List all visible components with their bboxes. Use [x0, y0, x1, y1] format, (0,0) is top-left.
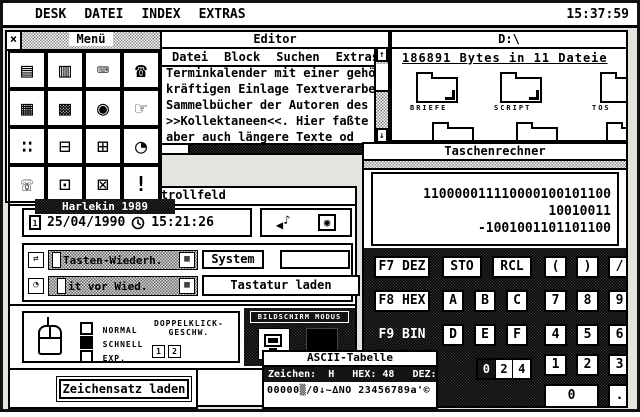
- folder-label-script: SCRIPT: [494, 104, 531, 112]
- decimal-point-button[interactable]: .: [608, 384, 628, 408]
- speed-box-1[interactable]: 1: [152, 345, 165, 358]
- notes-icon[interactable]: ▤: [8, 51, 46, 89]
- card-index-icon[interactable]: ▥: [46, 51, 84, 89]
- digit-6-button[interactable]: 6: [608, 324, 628, 346]
- terminal-icon[interactable]: ⊠: [84, 165, 122, 203]
- calculator-icon[interactable]: ▩: [46, 89, 84, 127]
- menu-datei[interactable]: DATEI: [84, 7, 123, 22]
- paren-close-button[interactable]: ): [576, 256, 599, 278]
- folder-icon[interactable]: [500, 77, 542, 103]
- editor-line: Terminkalender mit einer gehöri: [162, 65, 374, 81]
- clock-icon: [131, 216, 145, 230]
- dice-icon[interactable]: ∷: [8, 127, 46, 165]
- editor-line: kräftigen Einlage Textverarbeit: [162, 81, 374, 97]
- folder-label-briefe: BRIEFE: [410, 104, 447, 112]
- sound-panel: ◀♪ ◉: [260, 208, 352, 237]
- editor-menu-extras[interactable]: Extras: [336, 50, 379, 64]
- menubar: DESK DATEI INDEX EXTRAS 15:37:59: [3, 3, 637, 28]
- floppy-icon[interactable]: ⊞: [84, 127, 122, 165]
- calculator-display: 110000011110000100101100 10010011 -10010…: [371, 172, 619, 246]
- close-icon[interactable]: ×: [7, 32, 22, 49]
- file-titlebar[interactable]: D:\: [392, 32, 626, 49]
- ascii-title: ASCII-Tabelle: [307, 352, 393, 364]
- pointer-hand-icon[interactable]: ☞: [122, 89, 160, 127]
- editor-window: Editor Datei Block Suchen Extras Termink…: [160, 30, 390, 155]
- typewriter-icon[interactable]: ⌨: [84, 51, 122, 89]
- time-value[interactable]: 15:21:26: [151, 215, 214, 230]
- folder-icon[interactable]: [416, 77, 458, 103]
- calculator-title: Taschenrechner: [444, 144, 545, 158]
- editor-line: >>Kollektaneen<<. Hier faßte ma: [162, 113, 374, 129]
- hex-f-button[interactable]: F: [506, 324, 528, 346]
- menu-extras[interactable]: EXTRAS: [199, 7, 246, 22]
- key-repeat-end-icon: ▦: [179, 252, 195, 268]
- bell-icon[interactable]: ◉: [318, 214, 336, 231]
- bin-mode-button[interactable]: F9 BIN: [374, 324, 430, 346]
- digit-2-button[interactable]: 2: [576, 354, 599, 376]
- hex-a-button[interactable]: A: [442, 290, 464, 312]
- folder-icon[interactable]: [432, 127, 474, 142]
- scroll-up-icon[interactable]: ↑: [376, 47, 388, 62]
- editor-hscrollbar[interactable]: [162, 143, 388, 153]
- keyboard-panel: ⇄ Tasten-Wiederh. ▦ System eigene ◔ it v…: [22, 243, 353, 302]
- folder-icon[interactable]: [600, 77, 628, 103]
- editor-menu-suchen[interactable]: Suchen: [276, 50, 319, 64]
- hex-c-button[interactable]: C: [506, 290, 528, 312]
- harlekin-label: Harlekin 1989: [35, 199, 175, 214]
- editor-text[interactable]: Terminkalender mit einer gehöri kräftige…: [162, 65, 374, 143]
- display-line: 110000011110000100101100: [373, 186, 611, 203]
- editor-line: Sammelbücher der Autoren des 18: [162, 97, 374, 113]
- divide-button[interactable]: /: [608, 256, 628, 278]
- mouse-panel: NORMAL SCHNELL EXP. DOPPELKLICK- GESCHW.…: [22, 311, 240, 363]
- hex-e-button[interactable]: E: [474, 324, 496, 346]
- key-repeat-slider[interactable]: Tasten-Wiederh. ▦: [48, 250, 198, 270]
- magnifier-icon[interactable]: ◉: [84, 89, 122, 127]
- editor-vscrollbar[interactable]: ↑ ↓: [374, 47, 388, 143]
- ascii-titlebar[interactable]: ASCII-Tabelle: [264, 352, 436, 367]
- repeat-delay-icon: ◔: [28, 278, 44, 294]
- hex-d-button[interactable]: D: [442, 324, 464, 346]
- key-repeat-icon: ⇄: [28, 252, 44, 268]
- digit-8-button[interactable]: 8: [576, 290, 599, 312]
- menu-index[interactable]: INDEX: [141, 7, 180, 22]
- calendar-page-icon: 1: [29, 215, 41, 230]
- desktop: DESK DATEI INDEX EXTRAS 15:37:59 Kontrol…: [0, 0, 640, 412]
- folder-icon[interactable]: [516, 127, 558, 142]
- clock: 15:37:59: [566, 7, 629, 22]
- word-size-display[interactable]: 0 2 4: [476, 358, 532, 380]
- hex-mode-button[interactable]: F8 HEX: [374, 290, 430, 312]
- digit-9-button[interactable]: 9: [608, 290, 628, 312]
- key-repeat-label: Tasten-Wiederh.: [63, 254, 162, 267]
- digit-7-button[interactable]: 7: [544, 290, 567, 312]
- label-exp: EXP.: [103, 354, 126, 363]
- speed-box-2[interactable]: 2: [168, 345, 181, 358]
- handset-icon[interactable]: ☏: [8, 165, 46, 203]
- calendar-icon[interactable]: ▦: [8, 89, 46, 127]
- screen-mode-label: BILDSCHIRM MODUS: [250, 311, 349, 323]
- repeat-delay-slider[interactable]: it vor Wied. ▦: [48, 276, 198, 296]
- tastatur-laden-button[interactable]: Tastatur laden: [202, 275, 360, 296]
- rcl-button[interactable]: RCL: [492, 256, 532, 278]
- folder-icon[interactable]: [606, 127, 628, 142]
- menu-titlebar[interactable]: Menü: [22, 32, 160, 49]
- ascii-info-line: Zeichen: H HEX: 48 DEZ: 72: [264, 367, 436, 382]
- scroll-down-icon[interactable]: ↓: [376, 128, 388, 143]
- file-info-line: 186891 Bytes in 11 Dateie: [392, 49, 626, 66]
- editor-titlebar[interactable]: Editor: [162, 32, 388, 49]
- display-line: 10010011: [373, 203, 611, 220]
- paren-open-button[interactable]: (: [544, 256, 567, 278]
- editor-title: Editor: [253, 32, 296, 46]
- mouse-icon: [36, 321, 66, 357]
- printer-icon[interactable]: ⊡: [46, 165, 84, 203]
- editor-menu-block[interactable]: Block: [224, 50, 260, 64]
- editor-line: aber auch längere Texte od: [162, 129, 374, 143]
- file-title: D:\: [498, 32, 520, 46]
- ascii-charset-row[interactable]: 00000▒/0↓~∆NO 23456789a'©: [264, 382, 436, 399]
- icon-grid: ▤ ▥ ⌨ ☎ ▦ ▩ ◉ ☞ ∷ ⊟ ⊞ ◔ ☏ ⊡ ⊠ !: [8, 51, 160, 203]
- calculator-titlebar[interactable]: Taschenrechner: [364, 144, 626, 161]
- menu-desk[interactable]: DESK: [35, 7, 66, 22]
- file-window: D:\ 186891 Bytes in 11 Dateie BRIEFE SCR…: [390, 30, 628, 142]
- car-icon[interactable]: ⊟: [46, 127, 84, 165]
- digit-1-button[interactable]: 1: [544, 354, 567, 376]
- display-line: -1001001101101100: [373, 220, 611, 237]
- exclamation-icon[interactable]: !: [122, 165, 160, 203]
- checkbox-exp[interactable]: [80, 350, 93, 363]
- hex-b-button[interactable]: B: [474, 290, 496, 312]
- editor-menu-datei[interactable]: Datei: [172, 50, 208, 64]
- menu-title: Menü: [69, 32, 114, 46]
- system-button[interactable]: System: [202, 250, 264, 269]
- sto-button[interactable]: STO: [442, 256, 482, 278]
- repeat-delay-end-icon: ▦: [179, 278, 195, 294]
- repeat-delay-label: it vor Wied.: [68, 280, 147, 293]
- telephone-icon[interactable]: ☎: [122, 51, 160, 89]
- eigene-button[interactable]: eigene: [280, 250, 350, 269]
- doubleclick-label: DOPPELKLICK- GESCHW.: [154, 319, 224, 337]
- digit-4-button[interactable]: 4: [544, 324, 567, 346]
- zeichensatz-laden-button[interactable]: Zeichensatz laden: [56, 376, 192, 402]
- monitor-icon: [264, 334, 282, 347]
- dez-mode-button[interactable]: F7 DEZ: [374, 256, 430, 278]
- folder-label-tos: TOS: [592, 104, 611, 112]
- digit-0-button[interactable]: 0: [544, 384, 599, 408]
- alarm-clock-icon[interactable]: ◔: [122, 127, 160, 165]
- speaker-icon[interactable]: ◀♪: [276, 213, 290, 232]
- charset-subwindow: Zeichensatz laden: [8, 368, 198, 409]
- digit-5-button[interactable]: 5: [576, 324, 599, 346]
- digit-3-button[interactable]: 3: [608, 354, 628, 376]
- ascii-window: ASCII-Tabelle Zeichen: H HEX: 48 DEZ: 72…: [262, 350, 438, 409]
- menu-window: × Menü ▤ ▥ ⌨ ☎ ▦ ▩ ◉ ☞ ∷ ⊟ ⊞ ◔ ☏ ⊡ ⊠ !: [5, 30, 162, 203]
- date-value[interactable]: 25/04/1990: [47, 215, 125, 230]
